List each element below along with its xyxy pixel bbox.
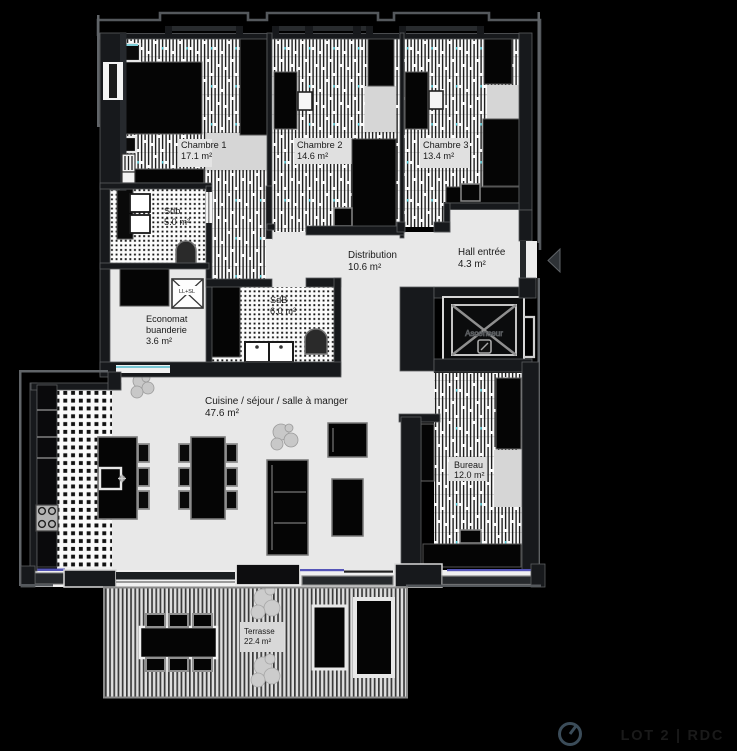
svg-text:22.4 m²: 22.4 m² — [244, 637, 271, 646]
svg-text:17.1 m²: 17.1 m² — [181, 151, 212, 161]
svg-text:6.0 m²: 6.0 m² — [270, 306, 296, 316]
svg-text:LL+SL: LL+SL — [179, 289, 195, 295]
svg-text:Economat: Economat — [146, 314, 188, 324]
svg-text:3.6 m²: 3.6 m² — [146, 336, 172, 346]
svg-text:Chambre 3: Chambre 3 — [423, 140, 468, 150]
svg-text:12.0 m²: 12.0 m² — [454, 470, 485, 480]
svg-text:Cuisine / séjour / salle à man: Cuisine / séjour / salle à manger — [205, 396, 349, 407]
svg-text:Bureau: Bureau — [454, 460, 483, 470]
svg-text:47.6 m²: 47.6 m² — [205, 408, 240, 419]
svg-text:Chambre 1: Chambre 1 — [181, 140, 226, 150]
svg-text:buanderie: buanderie — [146, 325, 187, 335]
svg-text:LOT 2 | RDC: LOT 2 | RDC — [621, 728, 724, 744]
svg-text:Distribution: Distribution — [348, 250, 397, 261]
svg-text:Terrasse: Terrasse — [244, 627, 275, 636]
svg-text:Ascenseur: Ascenseur — [465, 329, 503, 338]
svg-text:5.0 m²: 5.0 m² — [164, 217, 190, 227]
svg-text:Hall entrée: Hall entrée — [458, 247, 506, 258]
svg-text:14.6 m²: 14.6 m² — [297, 151, 328, 161]
svg-text:13.4 m²: 13.4 m² — [423, 151, 454, 161]
svg-text:Chambre 2: Chambre 2 — [297, 140, 342, 150]
svg-text:Sdb: Sdb — [164, 206, 180, 216]
svg-text:SdB: SdB — [270, 295, 287, 305]
svg-text:10.6 m²: 10.6 m² — [348, 262, 382, 273]
svg-text:4.3 m²: 4.3 m² — [458, 259, 487, 270]
